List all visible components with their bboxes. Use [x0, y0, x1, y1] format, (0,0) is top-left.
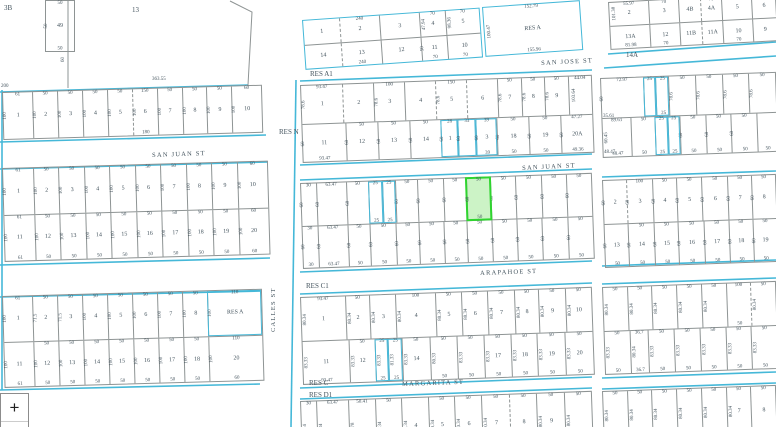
parcel-1[interactable]: 1	[303, 18, 340, 44]
lot-dimension: 60	[653, 242, 658, 247]
parcel-7[interactable]: 50778.6	[497, 78, 522, 117]
parcel-20a[interactable]: 47.2720A6049.36	[560, 115, 593, 153]
parcel[interactable]: 506050	[679, 116, 706, 154]
lot-dimension: 50	[662, 389, 667, 394]
parcel[interactable]: 2525	[667, 117, 681, 155]
parcel[interactable]: 5080.34	[651, 285, 677, 329]
parcel[interactable]: 506050	[444, 221, 469, 263]
area-label: 48.47	[604, 149, 615, 156]
parcel[interactable]: 506050	[516, 218, 543, 260]
parcel[interactable]: 5083.3350	[751, 326, 776, 368]
parcel[interactable]: 5083.3350	[725, 327, 752, 369]
lot-number: 12	[44, 360, 50, 366]
parcel-2[interactable]: 260	[603, 180, 627, 224]
parcel[interactable]: 5060	[417, 179, 444, 221]
parcel-3[interactable]: 100378.6	[373, 82, 405, 122]
lot-number: 15	[119, 358, 125, 364]
parcel[interactable]: 506050	[370, 223, 398, 265]
lot-dimension: 50	[43, 91, 48, 96]
parcel-9[interactable]: 50980.34	[536, 393, 566, 427]
parcel-9[interactable]: 9	[752, 18, 776, 42]
lot-dimension: 50	[507, 78, 512, 83]
parcel-18[interactable]: 50186050	[496, 118, 529, 156]
parcel-1[interactable]: 28160	[441, 120, 459, 157]
parcel-7[interactable]: 50780.34	[487, 291, 515, 335]
lot-dimension: 50	[576, 332, 581, 337]
parcel[interactable]: 506050	[705, 115, 732, 153]
parcel-17[interactable]: 501710050	[159, 337, 185, 382]
parcel-11[interactable]: 1183.3393.47	[303, 341, 350, 384]
parcel[interactable]: 5080.34	[676, 285, 702, 329]
parcel-8[interactable]: 50878.6	[520, 77, 545, 116]
area-label: RES D1	[309, 392, 332, 399]
parcel-5[interactable]: 505100	[107, 89, 133, 136]
parcel-8[interactable]: 508100	[186, 163, 213, 209]
parcel-49[interactable]: 50495050	[46, 1, 74, 51]
lot-dimension: 83.33	[606, 347, 611, 358]
lot-dimension: 70	[734, 0, 739, 1]
parcel[interactable]: 5078.6	[722, 74, 750, 114]
parcel[interactable]: 5080.3350	[429, 337, 457, 379]
lot-dimension: 50	[527, 218, 532, 223]
lot-dimension: 100	[212, 182, 217, 190]
parcel[interactable]: 2525	[381, 181, 396, 223]
lot-number: 1	[322, 316, 325, 322]
parcel[interactable]: 5080.34	[603, 287, 628, 331]
parcel-4[interactable]: 480.34	[401, 398, 429, 427]
parcel[interactable]: 3060	[301, 183, 317, 225]
parcel-3[interactable]: 703	[648, 0, 679, 23]
parcel-12[interactable]: 501210050	[34, 214, 61, 260]
parcel-16[interactable]: 501610050	[136, 211, 163, 257]
parcel[interactable]: 5060	[490, 176, 517, 218]
parcel-7[interactable]: 507100	[157, 292, 183, 337]
parcel-3[interactable]: 3936039	[475, 119, 497, 156]
lot-dimension: 50	[428, 179, 433, 184]
parcel-15[interactable]: 501510050	[109, 339, 135, 384]
lot-dimension: 30	[306, 401, 311, 406]
parcel-18[interactable]: 50186050	[728, 220, 754, 262]
lot-dimension: 50	[686, 178, 691, 183]
parcel-17[interactable]: 50176050	[704, 221, 730, 263]
lot-number: 3	[663, 8, 666, 14]
parcel-13[interactable]: 13240	[341, 40, 382, 66]
lot-number: 9	[223, 182, 226, 188]
parcel-2[interactable]: 2402	[339, 16, 380, 42]
parcel[interactable]: 63.476063.47	[317, 225, 349, 268]
parcel-12[interactable]: 12	[380, 37, 421, 63]
lot-dimension: 60	[317, 244, 322, 249]
lot-number: 7	[495, 420, 498, 426]
lot-dimension: 80.34	[347, 312, 352, 323]
parcel-5[interactable]: 505100	[109, 165, 136, 211]
lot-dimension: 50	[420, 46, 425, 51]
parcel-6[interactable]: 50680.34	[461, 291, 489, 335]
parcel-19[interactable]: 50196050	[752, 219, 776, 261]
parcel[interactable]: 506050	[467, 220, 493, 262]
parcel-res-a[interactable]: 110RES A100	[207, 290, 262, 336]
parcel-1[interactable]: 611100	[3, 296, 33, 341]
lot-dimension: 50	[121, 212, 126, 217]
parcel-1[interactable]: 93.47178.6	[301, 85, 344, 125]
lot-number: 5	[447, 311, 450, 317]
lot-dimension: 50	[761, 282, 766, 287]
parcel-13[interactable]: 136050	[605, 225, 630, 267]
parcel[interactable]: 10050	[726, 283, 752, 327]
lot-dimension: 60	[603, 244, 608, 249]
lot-number: 7	[169, 108, 172, 114]
parcel-9[interactable]: 509100	[206, 87, 232, 134]
parcel-6[interactable]: 1506100180	[132, 89, 158, 136]
area-label: 60	[60, 57, 67, 62]
parcel-5[interactable]: 705	[721, 0, 752, 20]
parcel[interactable]: 5080.34	[603, 391, 628, 427]
parcel-2[interactable]: 2	[342, 83, 374, 123]
lot-dimension: 50	[45, 214, 50, 219]
parcel-20[interactable]: 1102010060	[208, 335, 263, 381]
lot-dimension: 49.36	[572, 147, 583, 152]
lot-dimension: 81.98	[625, 43, 636, 49]
zoom-in-button[interactable]: +	[1, 394, 28, 421]
parcel[interactable]: 5080.34	[750, 282, 776, 326]
parcel-5[interactable]: 50560	[676, 178, 703, 222]
lot-dimension: 50	[69, 340, 74, 345]
parcel-6[interactable]: 50660	[701, 177, 728, 221]
lot-dimension: 80.34	[629, 303, 634, 314]
lot-dimension: 100	[58, 111, 63, 119]
parcel[interactable]: 63.4760	[316, 182, 347, 225]
parcel-6[interactable]: 6	[466, 79, 498, 119]
parcel-6[interactable]: 50680.34	[454, 396, 482, 427]
parcel[interactable]: 5080.34	[701, 284, 727, 328]
lot-dimension: 100	[137, 231, 142, 239]
lot-number: 18	[198, 230, 204, 236]
lot-number: 10	[250, 182, 256, 188]
parcel-19[interactable]: 501983.3350	[537, 333, 566, 375]
lot-number: 17	[172, 230, 178, 236]
parcel-18[interactable]: 501810050	[187, 210, 214, 256]
parcel-2[interactable]: 55.972101.38	[609, 1, 649, 26]
parcel-8[interactable]: 50860	[751, 175, 776, 219]
lot-number: 9	[551, 308, 554, 314]
lot-dimension: 80.34	[753, 299, 758, 310]
lot-dimension: 60	[475, 135, 480, 140]
parcel-4[interactable]: 100480.34	[395, 293, 436, 338]
parcel-20[interactable]: 602010060	[238, 208, 270, 254]
parcel-4[interactable]: 504100	[84, 166, 111, 212]
parcel-14[interactable]: 50146050	[628, 224, 655, 266]
lot-dimension: 50	[737, 364, 742, 369]
parcel-18[interactable]: 501810050	[183, 337, 209, 382]
lot-dimension: 50	[143, 293, 148, 298]
lot-number: 19	[762, 237, 768, 243]
lot-dimension: 80.34	[437, 309, 442, 320]
parcel-1[interactable]: 611100	[3, 168, 34, 214]
parcel[interactable]: 2583.3325	[375, 339, 390, 381]
lot-dimension: 50	[614, 332, 619, 337]
parcel-4[interactable]: 504100	[82, 90, 108, 137]
parcel-20[interactable]: 502083.3350	[565, 332, 594, 374]
lot-dimension: 50	[148, 252, 153, 257]
parcel-9[interactable]: 50980.34	[538, 289, 566, 333]
lot-dimension: 60	[727, 196, 732, 201]
lot-dimension: 50	[173, 251, 178, 256]
lot-number: 4	[414, 423, 417, 427]
lot-dimension: 63.47	[327, 225, 338, 230]
parcel-2[interactable]: 50271.5	[32, 295, 58, 340]
parcel-13a[interactable]: 13A81.98	[610, 24, 650, 49]
lot-dimension: 100	[33, 111, 38, 119]
lot-number: 2	[45, 187, 48, 193]
parcel[interactable]: 5083.3350	[699, 328, 726, 370]
parcel[interactable]: 5060	[566, 174, 593, 216]
lot-dimension: 50	[503, 256, 508, 261]
highlighted-parcel[interactable]: 506050	[466, 177, 492, 219]
parcel[interactable]: 506050	[347, 224, 371, 266]
parcel[interactable]: 5050	[631, 118, 656, 156]
lot-number: 14	[423, 136, 429, 142]
parcel-3[interactable]: 50371.5	[57, 295, 83, 340]
parcel[interactable]: 506050	[491, 219, 518, 261]
parcel[interactable]: 5078.6	[748, 73, 776, 113]
parcel[interactable]: 5080.34	[375, 398, 403, 427]
lot-dimension: 100	[85, 186, 90, 194]
parcel-17[interactable]: 501710050	[161, 210, 188, 256]
parcel[interactable]: 5080.34	[651, 389, 677, 427]
parcel-7[interactable]: 507100	[157, 88, 183, 135]
parcel-18[interactable]: 501883.3350	[511, 334, 538, 376]
lot-dimension: 50	[711, 388, 716, 393]
parcel-14[interactable]: 501410050	[85, 212, 112, 258]
parcel-8[interactable]: 508100	[182, 291, 208, 336]
parcel-3[interactable]: 100360	[626, 179, 653, 223]
lot-dimension: 71.5	[59, 313, 64, 322]
parcel-5[interactable]: 505100	[107, 293, 133, 338]
lot-number: 7	[738, 408, 741, 414]
parcel-8[interactable]: 50880.34	[514, 290, 540, 334]
parcel-5[interactable]: 150578.6	[435, 80, 467, 120]
parcel[interactable]: 36.780.3436.7	[629, 331, 649, 373]
lot-dimension: 50	[526, 176, 531, 181]
parcel-7[interactable]: 50760	[727, 176, 752, 220]
parcel-5[interactable]: 70598.36	[445, 9, 480, 35]
parcel-10[interactable]: 1070	[723, 19, 754, 43]
lot-dimension: 50	[404, 180, 409, 185]
lot-dimension: 50	[762, 326, 767, 331]
parcel[interactable]: 306030	[303, 226, 319, 268]
lot-dimension: 50	[662, 178, 667, 183]
parcel-4[interactable]: 504100	[82, 294, 108, 339]
parcel[interactable]: 5080.34	[564, 392, 592, 427]
parcel-7[interactable]: 50780.34	[481, 395, 511, 427]
parcel-5[interactable]: 50580.34	[434, 292, 462, 336]
parcel-11[interactable]: 116093.47	[302, 124, 346, 162]
parcel[interactable]: 50	[756, 113, 776, 151]
lot-dimension: 50	[637, 286, 642, 291]
parcel[interactable]: 5060	[443, 178, 468, 220]
parcel-14[interactable]: 501483.33	[401, 338, 430, 380]
parcel-7[interactable]: 50780.34	[726, 387, 752, 427]
parcel-10[interactable]: 6010100	[231, 86, 262, 133]
parcel-13[interactable]: 501310050	[60, 213, 87, 259]
parcel[interactable]: 5083.3350	[605, 332, 631, 374]
parcel-10[interactable]: 1070	[447, 33, 482, 59]
parcel-2[interactable]: 502100	[33, 167, 60, 213]
street-label: CALLES ST	[270, 287, 277, 332]
parcel[interactable]: 506050	[396, 222, 420, 264]
parcel[interactable]: 5083.3350	[648, 330, 675, 372]
lot-dimension: 61	[17, 215, 22, 220]
lot-number: 8	[525, 309, 528, 315]
lot-dimension: 50	[476, 177, 481, 182]
parcel[interactable]: 2525	[368, 181, 383, 223]
parcel[interactable]: 5080.34	[701, 388, 727, 427]
parcel-12[interactable]: 501283.33	[349, 340, 376, 382]
parcel[interactable]: 3360	[457, 119, 476, 156]
parcel-14[interactable]: 501410050	[84, 340, 110, 385]
lot-dimension: 80.34	[378, 422, 383, 427]
parcel-3[interactable]: 380.34	[369, 295, 397, 339]
parcel[interactable]: 506050	[542, 217, 569, 259]
parcel-7[interactable]: 507100	[160, 164, 187, 210]
parcel-11a[interactable]: 11A	[701, 21, 724, 45]
lot-number: 18	[738, 238, 744, 244]
parcel-14[interactable]: 501460	[409, 121, 442, 159]
lot-dimension: 50	[761, 175, 766, 180]
parcel[interactable]: 63.4780.34	[316, 400, 350, 427]
lot-number: 14	[413, 356, 419, 362]
parcel[interactable]: 5083.3350	[456, 336, 484, 378]
lot-dimension: 60	[440, 136, 445, 141]
parcel-6[interactable]: 506100	[135, 165, 162, 211]
lot-dimension: 100	[83, 313, 88, 321]
parcel-15[interactable]: 501510050	[111, 212, 138, 258]
parcel-1[interactable]: 93.47180.34	[301, 296, 346, 341]
parcel-8[interactable]: 508	[509, 394, 537, 427]
parcel-9[interactable]: 50978.6	[544, 77, 569, 116]
zoom-out-button[interactable]: −	[1, 421, 28, 427]
parcel-10[interactable]: 6010100	[237, 162, 269, 208]
lot-dimension: 70	[661, 0, 666, 5]
lot-dimension: 240	[359, 60, 367, 66]
map-block-M4: 3080.3463.4780.3450.4181.785080.34480.34…	[300, 391, 594, 427]
parcel[interactable]: 50.4181.78	[348, 399, 376, 427]
parcel[interactable]: 506050	[567, 216, 594, 258]
parcel-4[interactable]: 4	[404, 81, 436, 121]
parcel[interactable]: 5080.34	[627, 286, 653, 330]
parcel-12[interactable]: 501260	[345, 123, 378, 161]
parcel[interactable]: 5083.3350	[674, 329, 701, 371]
lot-dimension: 80.34	[654, 408, 659, 419]
parcel-12[interactable]: 501210050	[34, 341, 60, 386]
parcel-12[interactable]: 1270	[649, 23, 680, 47]
parcel-4a[interactable]: 704A	[700, 0, 723, 21]
parcel-10[interactable]: 501080.34	[564, 288, 592, 332]
parcel-1[interactable]: 611100	[3, 92, 33, 139]
lot-dimension: 100	[159, 356, 164, 364]
lot-dimension: 50	[716, 115, 721, 120]
lot-dimension: 83.33	[728, 343, 733, 354]
lot-dimension: 60	[442, 197, 447, 202]
lot-dimension: 44.04	[574, 76, 585, 81]
lot-number: 17	[495, 353, 501, 359]
parcel-4[interactable]: 70447.94	[418, 11, 446, 36]
parcel-3[interactable]: 3	[379, 13, 420, 39]
lot-dimension: 50	[736, 387, 741, 392]
parcel[interactable]: 5080.34	[627, 390, 653, 427]
lot-number: 3	[485, 134, 488, 140]
parcel-11[interactable]: 115070	[420, 35, 448, 60]
lot-dimension: 80.34	[605, 304, 610, 315]
parcel-8[interactable]: 508100	[181, 87, 207, 134]
parcel-19[interactable]: 50196050	[528, 116, 561, 154]
lot-dimension: 50	[360, 340, 365, 345]
parcel-6[interactable]: 6	[751, 0, 776, 18]
lot-dimension: 78.6	[670, 92, 675, 101]
parcel[interactable]: 5078.6	[695, 75, 723, 115]
lot-dimension: 50	[523, 371, 528, 376]
parcel-9[interactable]: 509100	[211, 162, 238, 208]
parcel-8[interactable]: 508	[750, 386, 776, 427]
parcel[interactable]: 44.04103.64	[567, 76, 592, 115]
parcel-5[interactable]: 50580.34	[428, 397, 456, 427]
lot-dimension: 61	[15, 168, 20, 173]
parcel[interactable]: 5080.34	[676, 389, 702, 427]
parcel-13[interactable]: 501310050	[59, 340, 85, 385]
parcel[interactable]: 506050	[731, 114, 758, 152]
parcel[interactable]: 2581.3325	[388, 339, 403, 381]
parcel-res-a[interactable]: 152.79RES A100.47155.96	[483, 1, 582, 56]
lot-number: 9	[555, 93, 558, 99]
parcel-4[interactable]: 50460	[652, 178, 677, 222]
map-block-R3: 5080.345080.345080.345080.345080.3410050…	[602, 281, 776, 375]
parcel-2[interactable]: 50280.34	[345, 296, 371, 340]
parcel[interactable]: 5060	[395, 180, 419, 222]
parcel-11[interactable]: 1110061	[4, 342, 34, 387]
parcel-3[interactable]: 503100	[57, 91, 83, 138]
parcel-11b[interactable]: 11B	[679, 22, 702, 46]
lot-dimension: 80.34	[404, 421, 409, 427]
parcel-15[interactable]: 50156050	[654, 223, 680, 265]
parcel[interactable]: 506050	[418, 222, 445, 264]
parcel[interactable]: 2525	[655, 77, 669, 117]
parcel-6[interactable]: 506100	[132, 293, 158, 338]
parcel-16[interactable]: 50166050	[678, 222, 705, 264]
lot-dimension: 100	[237, 181, 242, 189]
parcel-16[interactable]: 501610050	[134, 338, 160, 383]
parcel[interactable]: 5078.6	[668, 76, 696, 116]
parcel-13[interactable]: 501360	[377, 122, 410, 160]
lot-dimension: 60	[457, 136, 462, 141]
parcel-11[interactable]: 611110061	[4, 215, 35, 261]
parcel[interactable]: 5060	[540, 175, 567, 217]
parcel[interactable]: 5060	[346, 182, 370, 224]
lot-dimension: 50	[616, 369, 621, 374]
parcel-19[interactable]: 501910050	[212, 209, 239, 255]
parcel-3[interactable]: 503100	[58, 167, 85, 213]
parcel-4b[interactable]: 4B	[678, 0, 701, 22]
lot-dimension: 50	[706, 75, 711, 80]
map-viewport[interactable]: 5049505061110050210050310050410050510015…	[0, 0, 776, 427]
parcel-14[interactable]: 14	[305, 43, 342, 69]
parcel[interactable]: 5060	[515, 176, 542, 218]
parcel-2[interactable]: 502100	[32, 91, 58, 138]
lot-dimension: 50	[743, 147, 748, 152]
lot-dimension: 50	[217, 87, 222, 92]
lot-number: 12	[398, 47, 404, 53]
parcel-17[interactable]: 501783.3350	[483, 335, 512, 377]
lot-dimension: 60	[515, 195, 520, 200]
